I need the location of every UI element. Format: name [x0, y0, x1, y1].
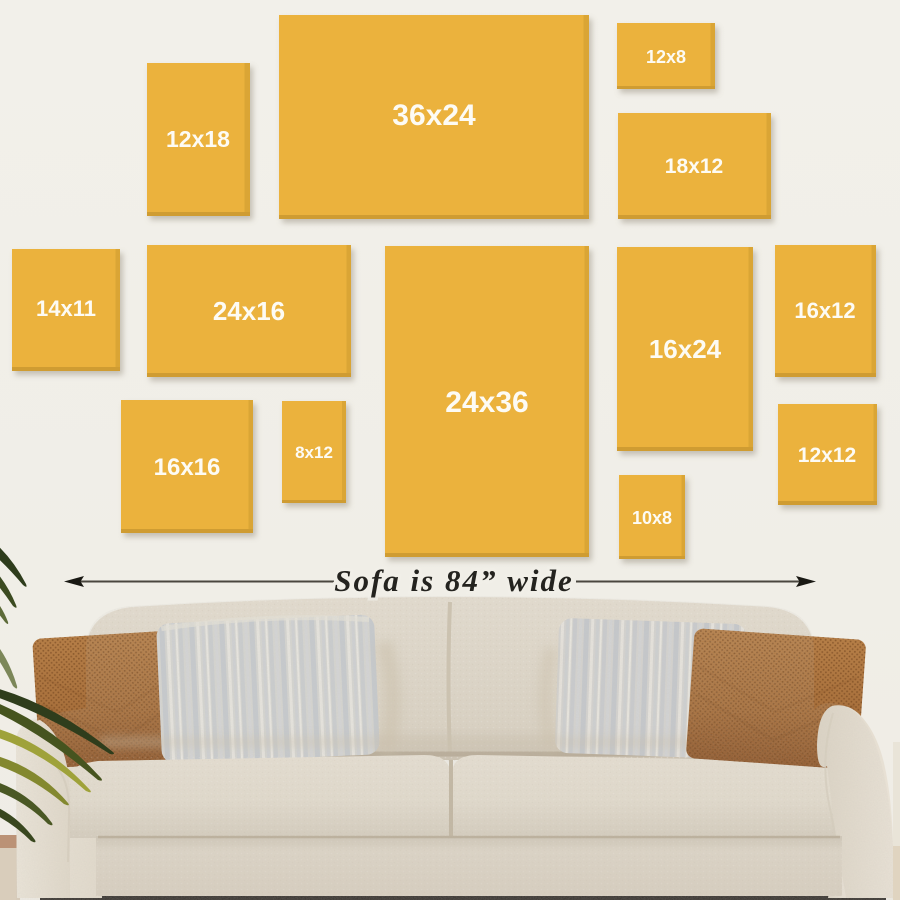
svg-text:12x8: 12x8: [646, 47, 686, 67]
svg-text:24x16: 24x16: [213, 296, 285, 326]
svg-text:8x12: 8x12: [295, 443, 333, 462]
svg-text:18x12: 18x12: [665, 155, 723, 178]
svg-text:16x24: 16x24: [649, 334, 722, 364]
svg-text:16x16: 16x16: [154, 454, 221, 481]
svg-text:10x8: 10x8: [632, 508, 672, 528]
svg-text:36x24: 36x24: [392, 99, 476, 132]
svg-text:12x12: 12x12: [798, 444, 856, 467]
svg-text:24x36: 24x36: [445, 386, 528, 419]
svg-text:12x18: 12x18: [166, 126, 230, 152]
svg-text:14x11: 14x11: [36, 296, 96, 321]
svg-text:Sofa is 84” wide: Sofa is 84” wide: [334, 563, 574, 598]
svg-text:16x12: 16x12: [794, 298, 855, 323]
